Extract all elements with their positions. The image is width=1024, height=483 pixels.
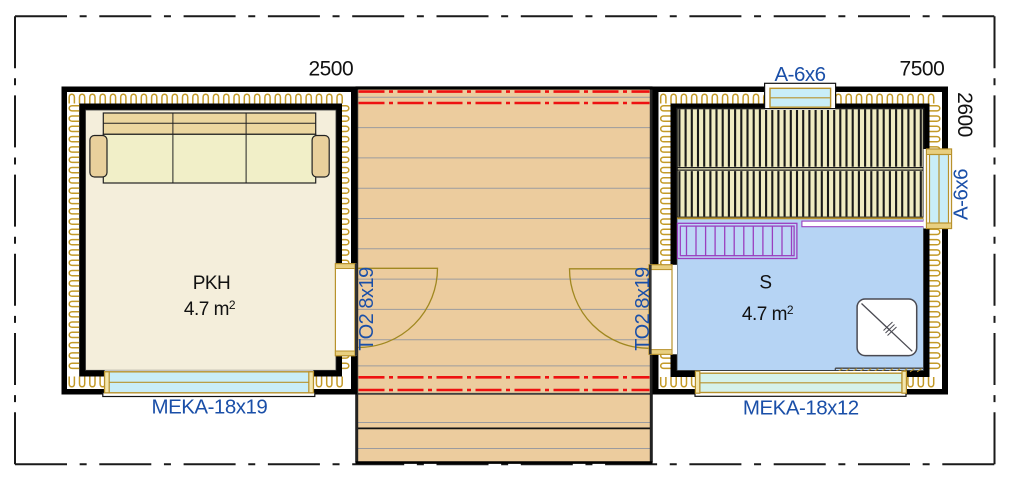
svg-text:MEKA-18x19: MEKA-18x19 xyxy=(152,396,268,419)
svg-text:TO2 8x19: TO2 8x19 xyxy=(356,267,378,351)
svg-text:TO2 8x19: TO2 8x19 xyxy=(632,267,654,351)
svg-text:MEKA-18x12: MEKA-18x12 xyxy=(743,397,859,420)
svg-text:S: S xyxy=(759,273,771,294)
svg-text:PKH: PKH xyxy=(193,273,231,294)
svg-text:A-6x6: A-6x6 xyxy=(950,169,973,220)
svg-text:7500: 7500 xyxy=(900,58,945,81)
svg-text:2500: 2500 xyxy=(308,58,353,81)
svg-text:4.7 m2: 4.7 m2 xyxy=(742,303,794,325)
svg-text:4.7 m2: 4.7 m2 xyxy=(184,298,236,320)
svg-text:2600: 2600 xyxy=(953,92,976,137)
svg-text:A-6x6: A-6x6 xyxy=(774,63,825,86)
